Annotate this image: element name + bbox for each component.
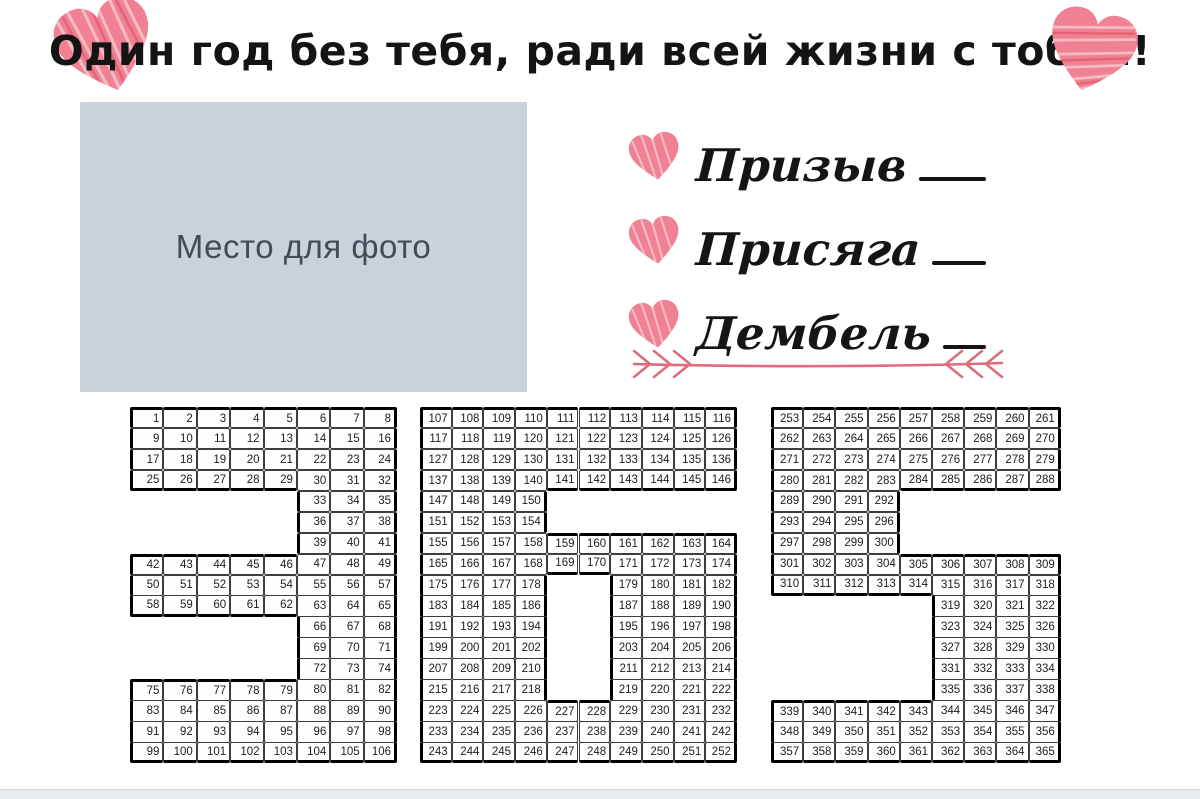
day-cell: 264	[835, 428, 867, 449]
day-cell: 292	[868, 491, 900, 512]
page-title: Один год без тебя, ради всей жизни с тоб…	[0, 27, 1200, 75]
day-cell: 196	[642, 616, 674, 637]
day-cell: 99	[130, 742, 163, 763]
day-cell: 337	[996, 679, 1028, 700]
day-cell: 236	[515, 721, 547, 742]
day-cell: 333	[996, 658, 1028, 679]
field-blank-prisyaga[interactable]	[932, 261, 986, 265]
day-cell: 243	[420, 742, 452, 763]
day-cell: 334	[1029, 658, 1061, 679]
day-cell: 38	[364, 512, 397, 533]
day-cell: 227	[547, 700, 579, 721]
day-cell: 153	[483, 512, 515, 533]
day-cell: 135	[674, 449, 706, 470]
day-cell: 120	[515, 428, 547, 449]
day-cell: 104	[297, 742, 330, 763]
day-cell: 42	[130, 554, 163, 575]
day-cell: 189	[674, 595, 706, 616]
day-cell: 323	[932, 616, 964, 637]
day-cell: 285	[932, 470, 964, 491]
day-cell: 329	[996, 637, 1028, 658]
day-cell: 123	[610, 428, 642, 449]
day-cell: 200	[452, 637, 484, 658]
day-cell: 221	[674, 679, 706, 700]
day-cell: 4	[230, 407, 263, 428]
day-cell: 349	[803, 721, 835, 742]
day-cell: 167	[483, 554, 515, 575]
day-cell: 146	[705, 470, 737, 491]
day-cell: 141	[547, 470, 579, 491]
day-cell: 237	[547, 721, 579, 742]
day-cell: 299	[835, 533, 867, 554]
day-cell: 283	[868, 470, 900, 491]
day-cell: 165	[420, 554, 452, 575]
day-cell: 118	[452, 428, 484, 449]
day-cell: 279	[1029, 449, 1061, 470]
day-cell: 121	[547, 428, 579, 449]
day-cell: 192	[452, 616, 484, 637]
photo-placeholder[interactable]: Место для фото	[80, 102, 527, 392]
day-cell: 122	[579, 428, 611, 449]
day-cell: 52	[197, 575, 230, 596]
day-cell: 36	[297, 512, 330, 533]
day-cell: 64	[330, 595, 363, 616]
day-cell: 139	[483, 470, 515, 491]
day-cell: 345	[964, 700, 996, 721]
day-cell: 150	[515, 491, 547, 512]
day-cell: 34	[330, 491, 363, 512]
day-cell: 180	[642, 575, 674, 596]
day-cell: 51	[163, 575, 196, 596]
day-cell: 268	[964, 428, 996, 449]
day-cell: 316	[964, 575, 996, 596]
day-cell: 317	[996, 575, 1028, 596]
day-cell: 11	[197, 428, 230, 449]
day-cell: 261	[1029, 407, 1061, 428]
day-cell: 115	[674, 407, 706, 428]
day-cell: 140	[515, 470, 547, 491]
day-cell: 98	[364, 721, 397, 742]
day-cell: 231	[674, 700, 706, 721]
day-cell: 188	[642, 595, 674, 616]
day-cell: 310	[771, 575, 803, 596]
day-cell: 212	[642, 658, 674, 679]
day-cell: 358	[803, 742, 835, 763]
day-cell: 347	[1029, 700, 1061, 721]
day-cell: 59	[163, 595, 196, 616]
day-cell: 16	[364, 428, 397, 449]
day-cell: 342	[868, 700, 900, 721]
day-cell: 344	[932, 700, 964, 721]
day-cell: 78	[230, 679, 263, 700]
demob-calendar-page: Один год без тебя, ради всей жизни с тоб…	[0, 0, 1200, 799]
day-cell: 186	[515, 595, 547, 616]
day-cell: 254	[803, 407, 835, 428]
day-cell: 5	[264, 407, 297, 428]
day-cell: 253	[771, 407, 803, 428]
day-cell: 331	[932, 658, 964, 679]
day-cell: 169	[547, 554, 579, 575]
day-cell: 352	[900, 721, 932, 742]
day-cell: 127	[420, 449, 452, 470]
day-cell: 77	[197, 679, 230, 700]
day-cell: 244	[452, 742, 484, 763]
day-cell: 302	[803, 554, 835, 575]
day-cell: 240	[642, 721, 674, 742]
day-cell: 255	[835, 407, 867, 428]
day-cell: 90	[364, 700, 397, 721]
day-cell: 29	[264, 470, 297, 491]
day-cell: 205	[674, 637, 706, 658]
day-cell: 171	[610, 554, 642, 575]
day-cell: 184	[452, 595, 484, 616]
day-cell: 114	[642, 407, 674, 428]
scribble-heart-icon	[625, 296, 685, 353]
day-cell: 353	[932, 721, 964, 742]
day-cell: 204	[642, 637, 674, 658]
day-cell: 185	[483, 595, 515, 616]
day-cell: 110	[515, 407, 547, 428]
day-cell: 15	[330, 428, 363, 449]
day-cell: 57	[364, 575, 397, 596]
day-cell: 48	[330, 554, 363, 575]
day-cell: 332	[964, 658, 996, 679]
day-cell: 282	[835, 470, 867, 491]
day-cell: 111	[547, 407, 579, 428]
day-cell: 117	[420, 428, 452, 449]
day-cell: 341	[835, 700, 867, 721]
day-cell: 82	[364, 679, 397, 700]
day-cell: 242	[705, 721, 737, 742]
day-cell: 223	[420, 700, 452, 721]
day-cell: 348	[771, 721, 803, 742]
day-cell: 108	[452, 407, 484, 428]
day-cell: 202	[515, 637, 547, 658]
day-cell: 272	[803, 449, 835, 470]
day-cell: 290	[803, 491, 835, 512]
day-cell: 14	[297, 428, 330, 449]
day-cell: 25	[130, 470, 163, 491]
day-cell: 248	[579, 742, 611, 763]
day-cell: 83	[130, 700, 163, 721]
day-cell: 49	[364, 554, 397, 575]
day-cell: 55	[297, 575, 330, 596]
field-blank-prizyv[interactable]	[919, 177, 986, 181]
day-cell: 355	[996, 721, 1028, 742]
day-cell: 44	[197, 554, 230, 575]
day-cell: 12	[230, 428, 263, 449]
day-cell: 224	[452, 700, 484, 721]
day-cell: 154	[515, 512, 547, 533]
day-cell: 311	[803, 575, 835, 596]
day-cell: 213	[674, 658, 706, 679]
day-cell: 295	[835, 512, 867, 533]
day-cell: 217	[483, 679, 515, 700]
day-cell: 214	[705, 658, 737, 679]
day-cell: 124	[642, 428, 674, 449]
day-cell: 63	[297, 595, 330, 616]
day-cell: 335	[932, 679, 964, 700]
day-cell: 314	[900, 575, 932, 596]
day-cell: 266	[900, 428, 932, 449]
day-cell: 275	[900, 449, 932, 470]
scribble-heart-icon	[1034, 0, 1147, 108]
day-cell: 72	[297, 658, 330, 679]
day-cell: 19	[197, 449, 230, 470]
day-cell: 177	[483, 575, 515, 596]
day-cell: 178	[515, 575, 547, 596]
day-cell: 13	[264, 428, 297, 449]
day-cell: 148	[452, 491, 484, 512]
day-cell: 24	[364, 449, 397, 470]
day-cell: 260	[996, 407, 1028, 428]
day-cell: 30	[297, 470, 330, 491]
day-cell: 54	[264, 575, 297, 596]
day-cell: 182	[705, 575, 737, 596]
day-cell: 277	[964, 449, 996, 470]
day-cell: 251	[674, 742, 706, 763]
day-cell: 320	[964, 595, 996, 616]
day-cell: 10	[163, 428, 196, 449]
day-cell: 66	[297, 616, 330, 637]
day-cell: 109	[483, 407, 515, 428]
day-cell: 351	[868, 721, 900, 742]
day-cell: 288	[1029, 470, 1061, 491]
day-cell: 65	[364, 595, 397, 616]
day-cell: 143	[610, 470, 642, 491]
digit-grid-5: 2532542552562572582592602612622632642652…	[771, 407, 1061, 763]
day-cell: 321	[996, 595, 1028, 616]
day-cell: 71	[364, 637, 397, 658]
day-cell: 269	[996, 428, 1028, 449]
day-cell: 45	[230, 554, 263, 575]
day-cell: 35	[364, 491, 397, 512]
day-cell: 134	[642, 449, 674, 470]
day-cell: 230	[642, 700, 674, 721]
day-cell: 131	[547, 449, 579, 470]
day-cell: 100	[163, 742, 196, 763]
day-cell: 33	[297, 491, 330, 512]
day-cell: 308	[996, 554, 1028, 575]
day-cell: 304	[868, 554, 900, 575]
day-cell: 28	[230, 470, 263, 491]
day-cell: 343	[900, 700, 932, 721]
field-label-prizyv: Призыв	[695, 143, 908, 188]
day-cell: 301	[771, 554, 803, 575]
day-cell: 338	[1029, 679, 1061, 700]
field-row-prisyaga: Присяга	[628, 206, 988, 272]
day-cell: 198	[705, 616, 737, 637]
day-cell: 179	[610, 575, 642, 596]
day-cell: 246	[515, 742, 547, 763]
day-cell: 256	[868, 407, 900, 428]
day-cell: 106	[364, 742, 397, 763]
day-cell: 50	[130, 575, 163, 596]
day-cell: 211	[610, 658, 642, 679]
day-cell: 281	[803, 470, 835, 491]
day-cell: 95	[264, 721, 297, 742]
day-cell: 155	[420, 533, 452, 554]
day-cell: 325	[996, 616, 1028, 637]
day-cell: 157	[483, 533, 515, 554]
scribble-heart-icon	[625, 212, 685, 269]
day-cell: 138	[452, 470, 484, 491]
day-cell: 75	[130, 679, 163, 700]
day-cell: 174	[705, 554, 737, 575]
day-cell: 218	[515, 679, 547, 700]
day-cell: 322	[1029, 595, 1061, 616]
day-cell: 132	[579, 449, 611, 470]
day-cell: 128	[452, 449, 484, 470]
day-cell: 176	[452, 575, 484, 596]
day-cell: 239	[610, 721, 642, 742]
day-cell: 210	[515, 658, 547, 679]
day-cell: 159	[547, 533, 579, 554]
day-cell: 339	[771, 700, 803, 721]
day-cell: 201	[483, 637, 515, 658]
day-cell: 73	[330, 658, 363, 679]
day-cell: 80	[297, 679, 330, 700]
day-cell: 136	[705, 449, 737, 470]
day-cell: 105	[330, 742, 363, 763]
day-cell: 93	[197, 721, 230, 742]
day-cell: 284	[900, 470, 932, 491]
day-cell: 340	[803, 700, 835, 721]
day-cell: 87	[264, 700, 297, 721]
day-cell: 137	[420, 470, 452, 491]
day-cell: 60	[197, 595, 230, 616]
day-cell: 324	[964, 616, 996, 637]
day-cell: 183	[420, 595, 452, 616]
day-cell: 270	[1029, 428, 1061, 449]
day-cell: 17	[130, 449, 163, 470]
day-cell: 326	[1029, 616, 1061, 637]
day-cell: 103	[264, 742, 297, 763]
day-cell: 199	[420, 637, 452, 658]
day-cell: 232	[705, 700, 737, 721]
day-cell: 156	[452, 533, 484, 554]
day-cell: 40	[330, 533, 363, 554]
day-cell: 68	[364, 616, 397, 637]
day-cell: 360	[868, 742, 900, 763]
day-cell: 359	[835, 742, 867, 763]
day-cell: 298	[803, 533, 835, 554]
day-cell: 84	[163, 700, 196, 721]
day-cell: 70	[330, 637, 363, 658]
day-cell: 6	[297, 407, 330, 428]
day-cell: 327	[932, 637, 964, 658]
day-cell: 209	[483, 658, 515, 679]
day-cell: 257	[900, 407, 932, 428]
day-cell: 170	[579, 554, 611, 575]
day-cell: 8	[364, 407, 397, 428]
day-cell: 43	[163, 554, 196, 575]
day-cell: 173	[674, 554, 706, 575]
digit-grid-6: 1071081091101111121131141151161171181191…	[420, 407, 737, 763]
day-cell: 336	[964, 679, 996, 700]
digit-grid-3: 1234567891011121314151617181920212223242…	[130, 407, 397, 763]
day-cell: 289	[771, 491, 803, 512]
day-cell: 37	[330, 512, 363, 533]
day-cell: 315	[932, 575, 964, 596]
day-cell: 113	[610, 407, 642, 428]
day-cell: 245	[483, 742, 515, 763]
day-cell: 195	[610, 616, 642, 637]
day-cell: 168	[515, 554, 547, 575]
day-cell: 361	[900, 742, 932, 763]
day-cell: 107	[420, 407, 452, 428]
day-cell: 330	[1029, 637, 1061, 658]
day-cell: 190	[705, 595, 737, 616]
day-cell: 278	[996, 449, 1028, 470]
field-row-prizyv: Призыв	[628, 122, 988, 188]
day-cell: 85	[197, 700, 230, 721]
scribble-heart-icon	[625, 128, 685, 185]
day-cell: 229	[610, 700, 642, 721]
day-cell: 58	[130, 595, 163, 616]
day-cell: 350	[835, 721, 867, 742]
day-cell: 69	[297, 637, 330, 658]
day-cell: 112	[579, 407, 611, 428]
day-cell: 67	[330, 616, 363, 637]
day-cell: 20	[230, 449, 263, 470]
day-cell: 147	[420, 491, 452, 512]
field-label-prisyaga: Присяга	[695, 227, 922, 272]
day-cell: 309	[1029, 554, 1061, 575]
day-cell: 300	[868, 533, 900, 554]
day-cell: 226	[515, 700, 547, 721]
day-cell: 41	[364, 533, 397, 554]
day-cell: 225	[483, 700, 515, 721]
day-cell: 197	[674, 616, 706, 637]
day-cell: 262	[771, 428, 803, 449]
day-cell: 274	[868, 449, 900, 470]
bottom-strip	[0, 789, 1200, 799]
day-cell: 133	[610, 449, 642, 470]
day-cell: 86	[230, 700, 263, 721]
day-cell: 207	[420, 658, 452, 679]
day-cell: 191	[420, 616, 452, 637]
day-cell: 166	[452, 554, 484, 575]
day-cell: 280	[771, 470, 803, 491]
day-cell: 193	[483, 616, 515, 637]
day-cell: 276	[932, 449, 964, 470]
day-cell: 238	[579, 721, 611, 742]
day-cell: 151	[420, 512, 452, 533]
day-cell: 152	[452, 512, 484, 533]
day-cell: 247	[547, 742, 579, 763]
day-cell: 249	[610, 742, 642, 763]
day-cell: 27	[197, 470, 230, 491]
day-cell: 271	[771, 449, 803, 470]
day-cell: 222	[705, 679, 737, 700]
day-cell: 2	[163, 407, 196, 428]
day-cell: 313	[868, 575, 900, 596]
day-cell: 125	[674, 428, 706, 449]
day-cell: 79	[264, 679, 297, 700]
day-cell: 1	[130, 407, 163, 428]
day-cell: 319	[932, 595, 964, 616]
day-cell: 265	[868, 428, 900, 449]
day-cell: 18	[163, 449, 196, 470]
day-cell: 161	[610, 533, 642, 554]
day-cell: 303	[835, 554, 867, 575]
day-cell: 26	[163, 470, 196, 491]
day-cell: 91	[130, 721, 163, 742]
day-cell: 158	[515, 533, 547, 554]
day-cell: 250	[642, 742, 674, 763]
day-cell: 119	[483, 428, 515, 449]
